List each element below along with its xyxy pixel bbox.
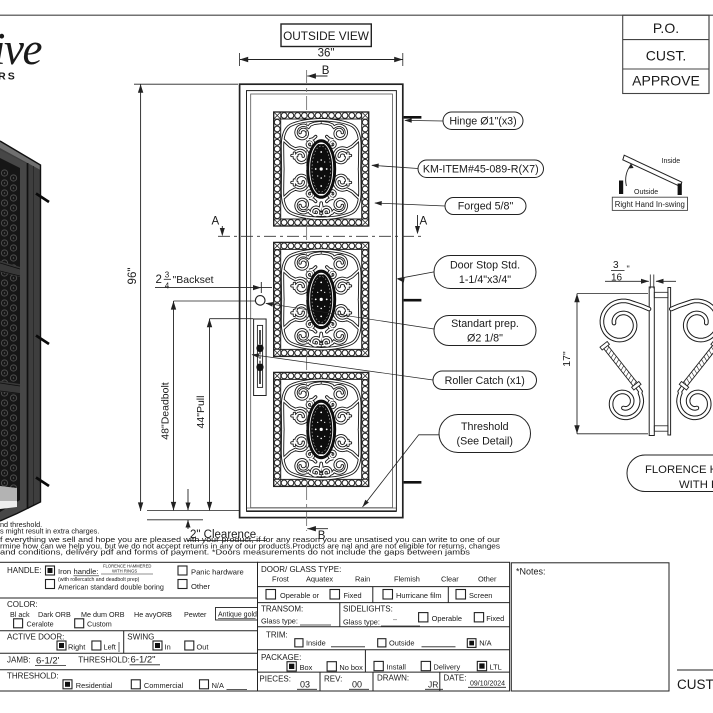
svg-text:17": 17" <box>561 351 573 367</box>
svg-text:N/A: N/A <box>479 639 491 648</box>
svg-text:Frost: Frost <box>272 575 289 584</box>
svg-text:and conditions, delivery pdf a: and conditions, delivery pdf and forms o… <box>0 548 470 557</box>
svg-text:6-1/2': 6-1/2' <box>36 655 60 666</box>
svg-text:DATE:: DATE: <box>444 674 467 683</box>
svg-text:Left: Left <box>104 642 116 651</box>
svg-text:N/A: N/A <box>212 681 224 690</box>
svg-text:Hinge Ø1"(x3): Hinge Ø1"(x3) <box>449 116 516 128</box>
svg-text:He avyORB: He avyORB <box>134 610 172 619</box>
svg-text:ACTIVE DOOR:: ACTIVE DOOR: <box>7 633 64 642</box>
svg-text:Delivery: Delivery <box>434 662 461 671</box>
svg-text:Operable or: Operable or <box>280 591 320 600</box>
svg-text:CUST.: CUST. <box>646 48 686 64</box>
svg-text:Custom: Custom <box>87 620 112 629</box>
svg-text:Screen: Screen <box>469 591 492 600</box>
svg-text:Residential: Residential <box>76 681 113 690</box>
svg-text:COLOR:: COLOR: <box>7 600 38 609</box>
svg-text:Out: Out <box>197 642 209 651</box>
svg-text:3: 3 <box>165 271 170 280</box>
svg-text:03: 03 <box>300 680 310 690</box>
svg-text:Other: Other <box>191 582 210 591</box>
svg-text:Standart prep.: Standart prep. <box>451 318 519 330</box>
svg-text:Operable: Operable <box>432 614 462 623</box>
svg-text:Glass type:: Glass type: <box>343 618 380 627</box>
svg-text:SIDELIGHTS:: SIDELIGHTS: <box>343 605 393 614</box>
svg-text:": " <box>627 264 630 274</box>
svg-text:*Notes:: *Notes: <box>516 567 546 577</box>
svg-text:Door Stop Std.: Door Stop Std. <box>450 260 520 272</box>
svg-text:THRESHOLD:: THRESHOLD: <box>78 655 130 664</box>
svg-text:CUSTOM: CUSTOM <box>677 677 713 692</box>
svg-text:4: 4 <box>165 282 170 291</box>
svg-text:"Backset: "Backset <box>173 274 214 286</box>
svg-text:6-1/2": 6-1/2" <box>131 654 156 665</box>
svg-text:WITH RINGS: WITH RINGS <box>679 479 713 491</box>
svg-text:ORS: ORS <box>0 71 17 83</box>
svg-text:Iron: Iron <box>58 567 71 576</box>
svg-text:HANDLE:: HANDLE: <box>7 566 42 575</box>
svg-text:Antique gold: Antique gold <box>218 612 257 619</box>
svg-text:Ø2 1/8": Ø2 1/8" <box>467 332 503 344</box>
svg-text:Rain: Rain <box>355 575 370 584</box>
svg-text:Hurricane film: Hurricane film <box>396 591 442 600</box>
svg-text:KM-ITEM#45-089-R(X7): KM-ITEM#45-089-R(X7) <box>423 164 539 176</box>
svg-text:(See Detail): (See Detail) <box>457 435 513 447</box>
svg-text:Glass type:: Glass type: <box>261 617 298 626</box>
svg-text:1-1/4"x3/4": 1-1/4"x3/4" <box>459 274 511 286</box>
svg-text:B: B <box>322 65 330 77</box>
svg-text:Panic hardware: Panic hardware <box>191 568 244 577</box>
svg-text:Ceralote: Ceralote <box>27 620 54 629</box>
svg-text:Inside: Inside <box>306 639 326 648</box>
svg-text:Right Hand In-swing: Right Hand In-swing <box>615 200 685 209</box>
svg-text:REV:: REV: <box>324 675 342 684</box>
svg-text:A: A <box>212 216 220 228</box>
svg-text:Other: Other <box>478 575 497 584</box>
svg-text:THRESHOLD:: THRESHOLD: <box>7 671 59 680</box>
svg-text:09/10/2024: 09/10/2024 <box>470 681 505 688</box>
svg-text:Flemish: Flemish <box>394 575 420 584</box>
svg-text:96": 96" <box>127 268 139 285</box>
svg-text:36": 36" <box>318 48 335 60</box>
svg-text:16: 16 <box>611 273 623 284</box>
svg-text:Inside: Inside <box>662 158 681 165</box>
svg-text:48"Deadbolt: 48"Deadbolt <box>160 382 172 440</box>
svg-text:FLORENCE HANDLE: FLORENCE HANDLE <box>645 464 713 476</box>
svg-text:TRANSOM:: TRANSOM: <box>261 605 303 614</box>
svg-text:In: In <box>165 642 171 651</box>
svg-text:Fixed: Fixed <box>486 614 504 623</box>
svg-text:Outside: Outside <box>389 639 414 648</box>
svg-text:DOOR/ GLASS TYPE:: DOOR/ GLASS TYPE: <box>261 565 341 574</box>
svg-text:No box: No box <box>339 663 363 672</box>
svg-text:Right: Right <box>68 642 85 651</box>
svg-text:A: A <box>420 216 428 228</box>
svg-text:Threshold: Threshold <box>461 421 509 433</box>
svg-text:PIECES:: PIECES: <box>259 675 291 684</box>
svg-text:DRAWN:: DRAWN: <box>377 674 409 683</box>
svg-text:OUTSIDE VIEW: OUTSIDE VIEW <box>283 29 370 43</box>
svg-text:Install: Install <box>387 662 407 671</box>
svg-text:PACKAGE:: PACKAGE: <box>261 653 301 662</box>
svg-text:Pewter: Pewter <box>184 610 207 619</box>
svg-text:LTL: LTL <box>490 662 502 671</box>
svg-text:Box: Box <box>300 663 313 672</box>
svg-text:00: 00 <box>352 680 362 690</box>
svg-text:handle:: handle: <box>74 567 99 576</box>
svg-text:JAMB:: JAMB: <box>7 655 31 664</box>
svg-text:2: 2 <box>156 274 162 286</box>
svg-text:Me dum ORB: Me dum ORB <box>81 610 125 619</box>
svg-text:WITH RINGS: WITH RINGS <box>112 569 137 574</box>
svg-text:Bl ack: Bl ack <box>10 610 30 619</box>
svg-text:--: -- <box>393 618 397 624</box>
svg-text:Clear: Clear <box>441 575 459 584</box>
svg-text:ive: ive <box>0 24 41 74</box>
svg-text:Commercial: Commercial <box>144 681 184 690</box>
svg-text:TRIM:: TRIM: <box>266 631 288 640</box>
svg-text:Aquatex: Aquatex <box>306 575 333 584</box>
svg-text:P.O.: P.O. <box>653 20 679 36</box>
svg-text:Fixed: Fixed <box>344 591 362 600</box>
svg-text:APPROVE: APPROVE <box>632 73 700 89</box>
svg-text:44"Pull: 44"Pull <box>195 396 207 429</box>
svg-text:3: 3 <box>613 260 619 271</box>
svg-text:American standard double borin: American standard double boring <box>58 583 164 592</box>
svg-text:Forged 5/8": Forged 5/8" <box>458 201 514 213</box>
svg-text:Dark ORB: Dark ORB <box>38 610 71 619</box>
svg-text:Roller Catch (x1): Roller Catch (x1) <box>445 375 525 387</box>
svg-text:Outside: Outside <box>634 189 658 196</box>
svg-text:SWING: SWING <box>127 633 154 642</box>
svg-text:JR: JR <box>428 680 438 690</box>
